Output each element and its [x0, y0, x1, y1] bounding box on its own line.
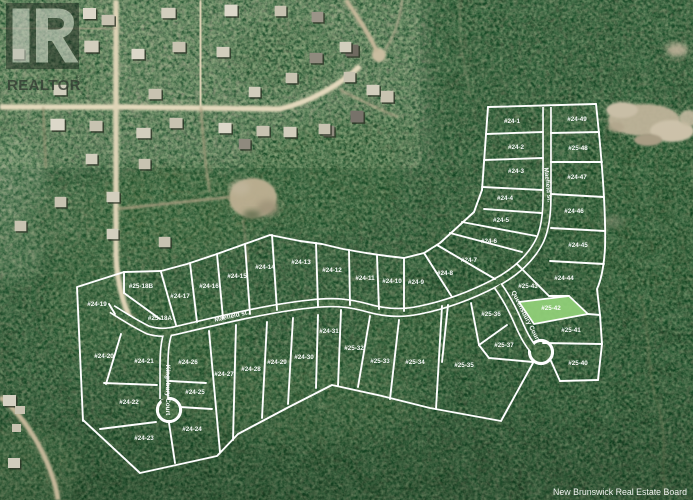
svg-text:#24-45: #24-45	[568, 242, 588, 249]
svg-text:#25-48: #25-48	[568, 145, 588, 152]
svg-text:#24-27: #24-27	[214, 371, 234, 378]
svg-text:#25-35: #25-35	[454, 362, 474, 369]
svg-text:#24-49: #24-49	[567, 116, 587, 123]
svg-text:#24-8: #24-8	[437, 270, 454, 277]
svg-text:#24-17: #24-17	[170, 293, 190, 300]
svg-text:#24-5: #24-5	[493, 217, 510, 224]
svg-text:#24-24: #24-24	[182, 426, 202, 433]
svg-text:#24-7: #24-7	[461, 257, 478, 264]
svg-text:REALTOR: REALTOR	[7, 77, 81, 94]
svg-text:#24-20: #24-20	[94, 353, 114, 360]
svg-text:#24-28: #24-28	[241, 366, 261, 373]
svg-text:#24-15: #24-15	[227, 273, 247, 280]
svg-text:#25-41: #25-41	[561, 327, 581, 334]
svg-text:#25-43: #25-43	[518, 283, 538, 290]
svg-text:#24-1: #24-1	[504, 118, 521, 125]
svg-text:Kingsbury Court: Kingsbury Court	[164, 365, 171, 416]
svg-text:#24-44: #24-44	[554, 275, 574, 282]
svg-text:#24-10: #24-10	[382, 278, 402, 285]
svg-text:#24-21: #24-21	[134, 358, 154, 365]
svg-text:#24-25: #24-25	[185, 389, 205, 396]
svg-text:#25-36: #25-36	[481, 311, 501, 318]
svg-text:New Brunswick Real Estate Boar: New Brunswick Real Estate Board	[553, 487, 687, 497]
svg-text:#24-31: #24-31	[319, 328, 339, 335]
svg-text:#24-29: #24-29	[267, 359, 287, 366]
svg-text:#24-12: #24-12	[322, 267, 342, 274]
svg-text:#25-33: #25-33	[370, 358, 390, 365]
svg-text:#24-26: #24-26	[178, 359, 198, 366]
svg-text:#24-14: #24-14	[255, 264, 275, 271]
svg-text:#24-19: #24-19	[87, 301, 107, 308]
svg-text:#25-42: #25-42	[541, 305, 561, 312]
svg-text:#24-4: #24-4	[497, 195, 514, 202]
svg-text:#24-46: #24-46	[564, 208, 584, 215]
svg-text:#24-13: #24-13	[291, 259, 311, 266]
svg-text:#24-9: #24-9	[408, 279, 425, 286]
svg-text:#25-37: #25-37	[494, 342, 514, 349]
svg-text:#24-16: #24-16	[199, 283, 219, 290]
svg-text:#24-47: #24-47	[567, 174, 587, 181]
svg-text:#24-23: #24-23	[134, 435, 154, 442]
svg-text:#24-6: #24-6	[481, 238, 498, 245]
svg-text:#24-30: #24-30	[294, 354, 314, 361]
svg-text:#25-40: #25-40	[568, 360, 588, 367]
svg-text:#24-2: #24-2	[508, 144, 525, 151]
svg-text:#24-11: #24-11	[355, 275, 375, 282]
svg-text:#25-32: #25-32	[344, 345, 364, 352]
svg-text:#25-18A: #25-18A	[148, 315, 173, 322]
svg-text:#25-34: #25-34	[405, 359, 425, 366]
svg-text:#25-18B: #25-18B	[129, 283, 154, 290]
svg-text:#24-3: #24-3	[508, 168, 525, 175]
svg-text:®: ®	[76, 74, 82, 82]
svg-text:#24-22: #24-22	[119, 399, 139, 406]
